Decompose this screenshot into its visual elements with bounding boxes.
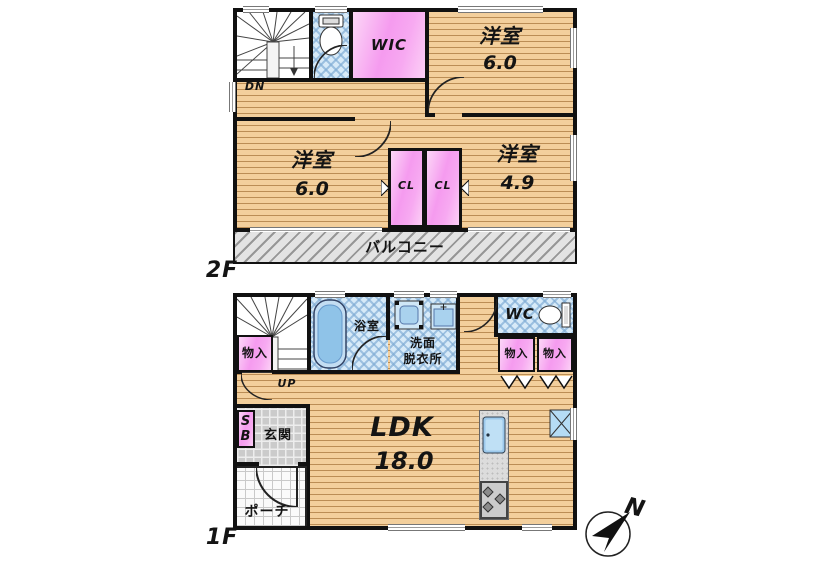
- washroom-label-line1: 洗面: [390, 337, 456, 349]
- floor-plan-canvas: DN WIC 洋室 6.0 洋室 6.0 洋室 4.9 CL CL バルコニー …: [0, 0, 840, 568]
- washroom-label-line2: 脱衣所: [390, 353, 456, 365]
- window: [229, 82, 236, 112]
- window: [430, 291, 457, 298]
- porch-label: ポーチ: [238, 505, 296, 519]
- window: [315, 6, 347, 13]
- window: [458, 6, 543, 13]
- window: [388, 524, 465, 531]
- room-label-bedroom-left: 洋室: [257, 150, 367, 170]
- room-label-bedroom-top: 洋室: [445, 26, 555, 46]
- closet-label: CL: [388, 180, 425, 191]
- window: [522, 524, 552, 531]
- room-area-bedroom-top: 6.0: [445, 54, 555, 73]
- room-label-bedroom-right: 洋室: [462, 144, 573, 164]
- floor2-title: 2F: [200, 260, 244, 282]
- floor1-title: 1F: [200, 527, 244, 549]
- balcony-label: バルコニー: [233, 240, 577, 255]
- storage-label: 物入: [498, 348, 535, 359]
- closet-label: CL: [424, 180, 462, 191]
- stairs-direction-label: DN: [240, 81, 270, 92]
- north-label: N: [620, 494, 651, 523]
- storage-label: 物入: [237, 347, 273, 359]
- shoebox-label-s: S: [238, 415, 254, 428]
- room-area-bedroom-right: 4.9: [462, 174, 573, 193]
- window: [315, 291, 345, 298]
- room-area-bedroom-left: 6.0: [257, 180, 367, 199]
- ldk-label: LDK: [347, 414, 457, 441]
- entrance-label: 玄関: [250, 429, 306, 442]
- window: [543, 291, 571, 298]
- bathroom-label: 浴室: [340, 320, 394, 332]
- window: [570, 408, 577, 440]
- room-label-wic: WIC: [353, 38, 425, 53]
- window: [394, 291, 424, 298]
- storage-label: 物入: [537, 348, 573, 359]
- wc-label: WC: [502, 307, 538, 322]
- window: [243, 6, 269, 13]
- ldk-area-label: 18.0: [349, 449, 459, 473]
- stairs-direction-label: UP: [272, 378, 302, 389]
- window: [570, 28, 577, 68]
